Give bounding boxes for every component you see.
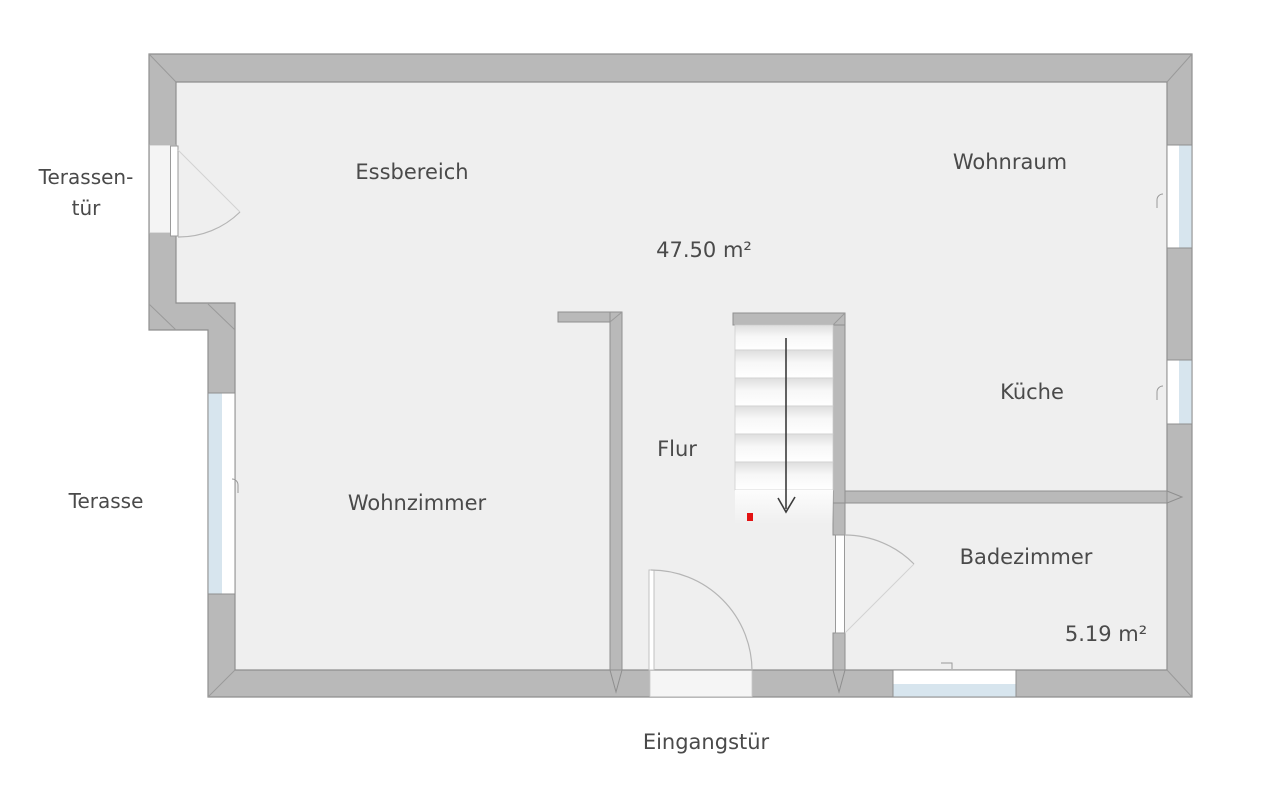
room-label-flur: Flur — [657, 437, 697, 461]
stairs — [735, 325, 833, 524]
terrace-window — [208, 393, 238, 594]
annotation-terrace-door: Terassen- tür — [39, 162, 134, 224]
room-label-kueche: Küche — [1000, 380, 1064, 404]
area-label-bathroom: 5.19 m² — [1065, 622, 1147, 646]
bathroom-door-jamb-lower — [833, 633, 845, 670]
door-leaf — [171, 146, 179, 236]
annotation-terrace-door-line1: Terassen- — [39, 162, 134, 193]
door-leaf — [649, 570, 654, 670]
floorplan-canvas: Essbereich Wohnraum 47.50 m² Küche Flur … — [0, 0, 1286, 796]
room-label-essbereich: Essbereich — [355, 160, 468, 184]
room-label-wohnraum: Wohnraum — [953, 150, 1067, 174]
floorplan-drawing — [0, 0, 1286, 796]
stair-tread — [735, 378, 833, 406]
room-label-badezimmer: Badezimmer — [960, 545, 1093, 569]
annotation-terrace-door-line2: tür — [39, 193, 134, 224]
stair-right-wall — [833, 325, 845, 503]
door-leaf — [836, 535, 845, 633]
stair-tread — [735, 350, 833, 378]
stair-tread — [735, 406, 833, 434]
partition-wall — [610, 312, 622, 670]
stair-tread — [735, 462, 833, 490]
bathroom-top-wall — [845, 491, 1167, 503]
annotation-entrance-door: Eingangstür — [643, 730, 769, 754]
annotation-terrace: Terasse — [69, 489, 144, 513]
bathroom-door-jamb-upper — [833, 503, 845, 535]
stair-start-marker — [747, 513, 753, 521]
stair-top-wall — [733, 313, 845, 325]
stair-tread — [735, 325, 833, 350]
room-label-wohnzimmer: Wohnzimmer — [348, 491, 486, 515]
stair-tread — [735, 434, 833, 462]
area-label-main: 47.50 m² — [656, 238, 752, 262]
